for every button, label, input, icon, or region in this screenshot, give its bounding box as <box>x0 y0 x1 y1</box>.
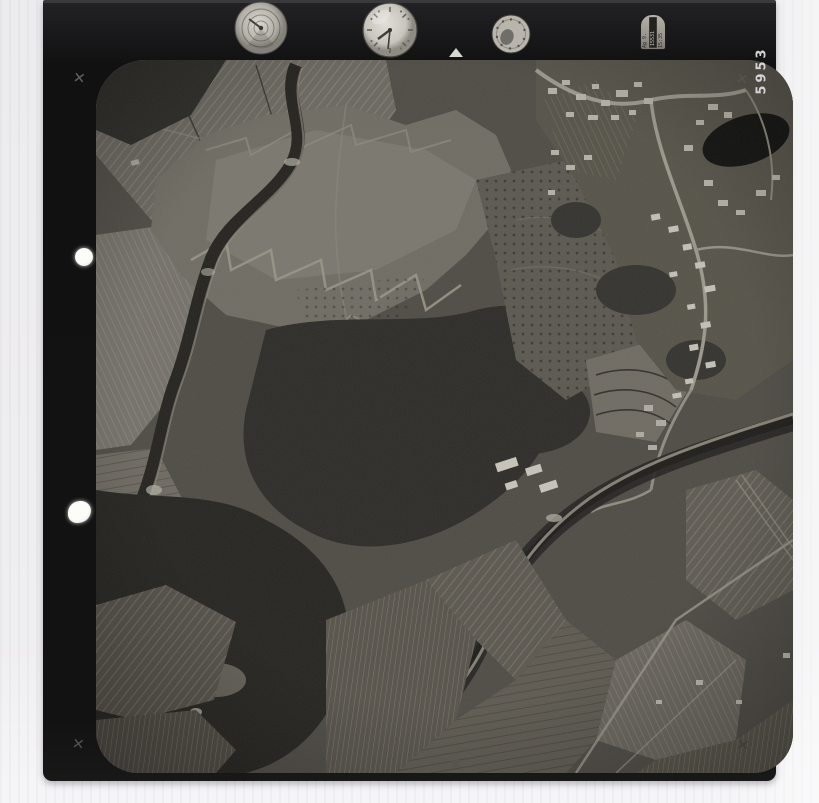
emulsion-defect-dot <box>75 248 93 266</box>
scan-background: Ag 9. 15531 15:35 <box>0 0 819 803</box>
aerial-photo <box>96 60 793 773</box>
bottom-fiducial-triangle-icon <box>450 760 462 768</box>
fiducial-cross-bottom-right-icon: ✕ <box>736 737 751 754</box>
data-plate-counter: 15531 <box>649 17 657 48</box>
film-sheet: Ag 9. 15531 15:35 <box>43 0 776 781</box>
frame-number: 5953 <box>747 42 777 98</box>
data-plate: Ag 9. 15531 15:35 <box>640 14 666 50</box>
aux-dial <box>491 14 531 54</box>
frame-number-text: 5953 <box>755 46 770 94</box>
data-plate-line-3: 15:35 <box>658 17 664 48</box>
aerial-photo-content <box>96 60 793 773</box>
data-plate-line-1: Ag 9. <box>642 17 648 48</box>
top-fiducial-triangle-icon <box>449 48 463 57</box>
fiducial-cross-top-left-icon: ✕ <box>72 70 87 87</box>
clock-dial <box>361 1 419 59</box>
altimeter-dial <box>234 1 288 55</box>
fiducial-cross-bottom-left-icon: ✕ <box>71 736 86 753</box>
